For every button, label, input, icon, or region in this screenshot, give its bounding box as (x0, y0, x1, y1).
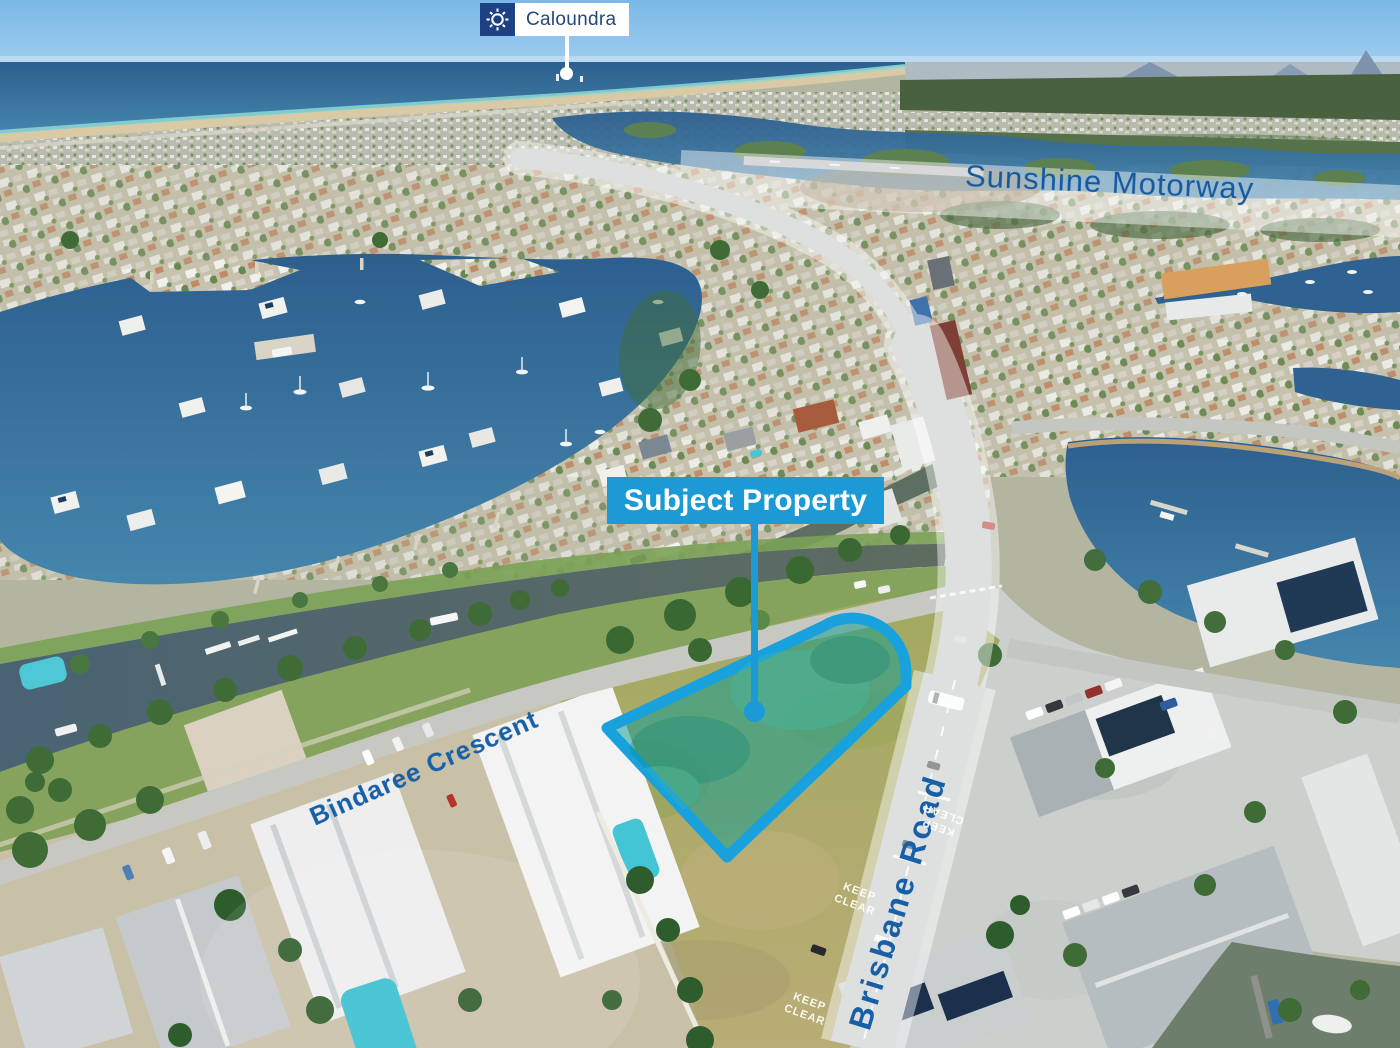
sun-icon (480, 3, 515, 36)
subject-property-pointer-dot (744, 701, 765, 722)
subject-property-label: Subject Property (607, 477, 884, 524)
caloundra-label: Caloundra (515, 3, 629, 36)
caloundra-pointer-line (565, 36, 569, 69)
caloundra-pointer-dot (560, 67, 573, 80)
aerial-scene (0, 0, 1400, 1048)
subject-property-pointer-line (751, 521, 758, 712)
aerial-photo: Caloundra Sunshine Motorway Subject Prop… (0, 0, 1400, 1048)
caloundra-callout: Caloundra (480, 3, 629, 36)
